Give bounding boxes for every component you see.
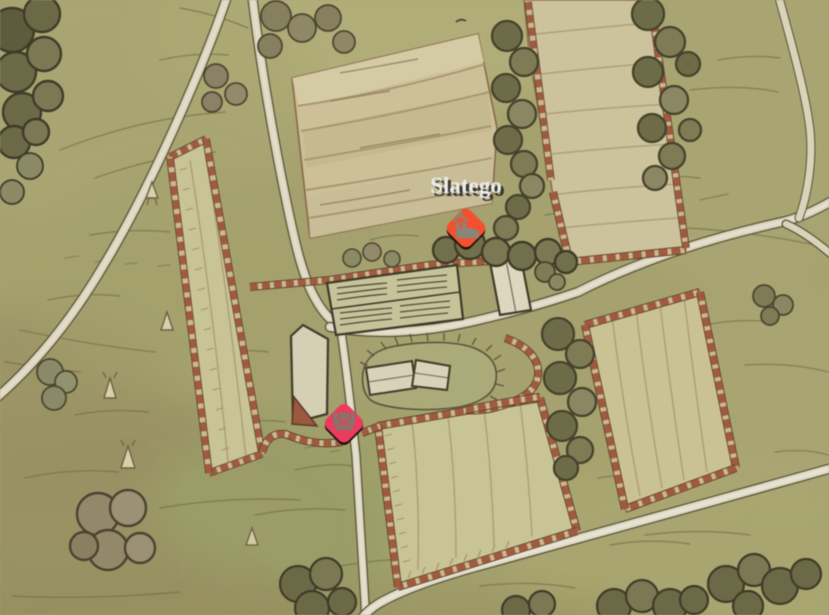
svg-text:Slatego: Slatego [430,173,502,198]
